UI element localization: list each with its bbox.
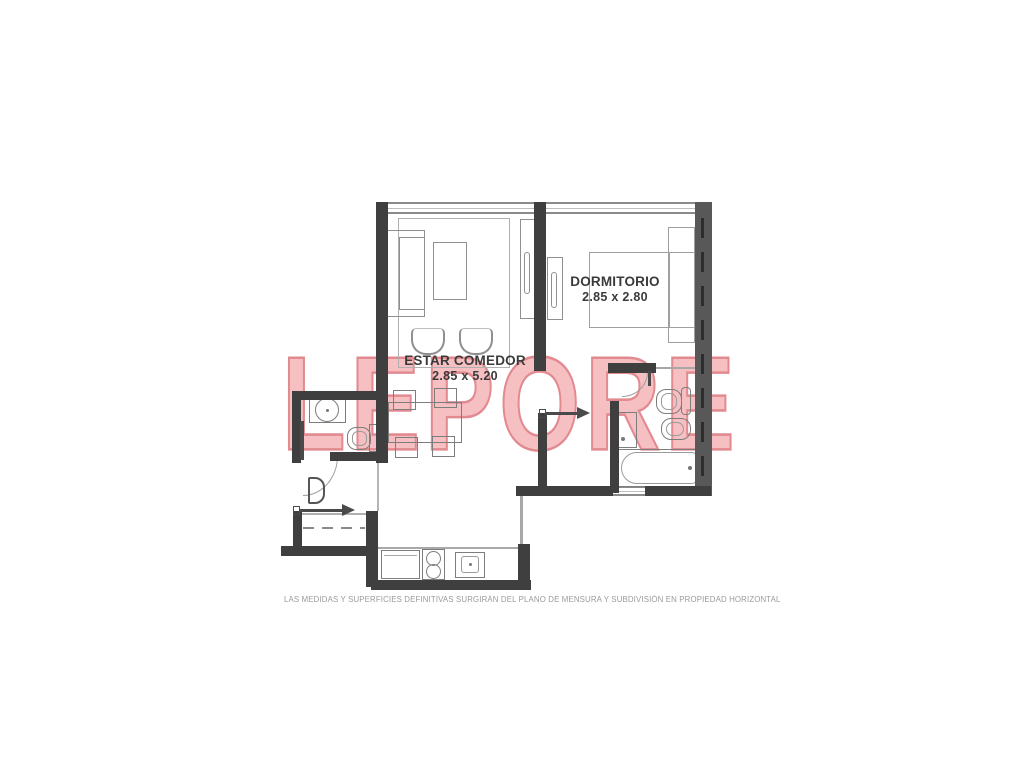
kitchen-bottom-wall — [371, 580, 531, 590]
floor-plan-page: LEPORE — [0, 0, 1024, 768]
hall-arrow-line — [545, 412, 579, 415]
dresser-handle — [551, 272, 557, 308]
lounge-chair-left — [411, 328, 445, 355]
left-exterior-wall — [376, 202, 388, 463]
wc-sink-drain — [326, 409, 329, 412]
bathroom-left-wall — [610, 401, 619, 493]
fridge-inner-line — [384, 555, 417, 556]
kitchen-sink-drain — [469, 563, 472, 566]
bedroom-bottom-wall-thin-line — [656, 367, 695, 369]
entry-boundary-line — [377, 463, 379, 511]
wc-toilet-bowl-inner — [352, 431, 367, 446]
entry-arrow-head — [342, 504, 355, 516]
wc-top-wall — [292, 391, 384, 400]
bedroom-label: DORMITORIO — [565, 274, 665, 289]
bathtub-drain — [688, 466, 692, 470]
bath-toilet-bowl-inner — [661, 393, 677, 410]
closet-bottom-wall — [281, 546, 377, 556]
headboard-divider-bottom — [668, 327, 695, 328]
bath-toilet-tank — [681, 387, 691, 415]
bidet-inner — [666, 422, 684, 436]
bathroom-door-leaf — [648, 371, 651, 386]
vanity-drain — [621, 437, 625, 441]
sofa-seat — [399, 237, 425, 310]
entry-marker-d — [308, 477, 325, 504]
dining-chair-3 — [395, 437, 418, 458]
headboard — [668, 227, 695, 343]
headboard-divider-top — [668, 252, 695, 253]
dining-chair-1 — [393, 390, 416, 410]
dining-chair-4 — [432, 436, 455, 457]
lounge-chair-right — [459, 328, 493, 355]
dining-chair-2 — [434, 388, 457, 408]
stove-burner-bottom — [426, 564, 441, 579]
kitchen-right-pillar — [518, 544, 530, 586]
wall-hatch-pattern — [701, 204, 704, 494]
wc-door-leaf — [300, 421, 304, 460]
living-room-label: ESTAR COMEDOR — [385, 353, 545, 368]
closet-rod-dashed-line — [303, 527, 365, 529]
closet-right-pillar — [366, 511, 378, 587]
right-exterior-wall — [695, 202, 712, 496]
living-room-dimensions: 2.85 x 5.20 — [385, 369, 545, 383]
living-bedroom-divider-wall — [534, 202, 546, 371]
hallway-bottom-wall — [516, 486, 613, 496]
hall-arrow-head — [577, 407, 590, 419]
kitchen-counter-edge — [378, 547, 518, 549]
wc-bottom-wall — [330, 452, 387, 461]
tv-unit-handle — [524, 252, 530, 294]
entry-arrow-line — [299, 509, 343, 512]
bathroom-bottom-wall — [645, 486, 711, 496]
hallway-left-wall — [538, 413, 547, 493]
bathtub-inner — [621, 452, 697, 484]
closet-front-line — [302, 513, 366, 515]
coffee-table — [433, 242, 467, 300]
kitchen-opening-line — [520, 494, 523, 544]
bedroom-dimensions: 2.85 x 2.80 — [565, 290, 665, 304]
disclaimer-text: LAS MEDIDAS Y SUPERFICIES DEFINITIVAS SU… — [284, 595, 725, 604]
